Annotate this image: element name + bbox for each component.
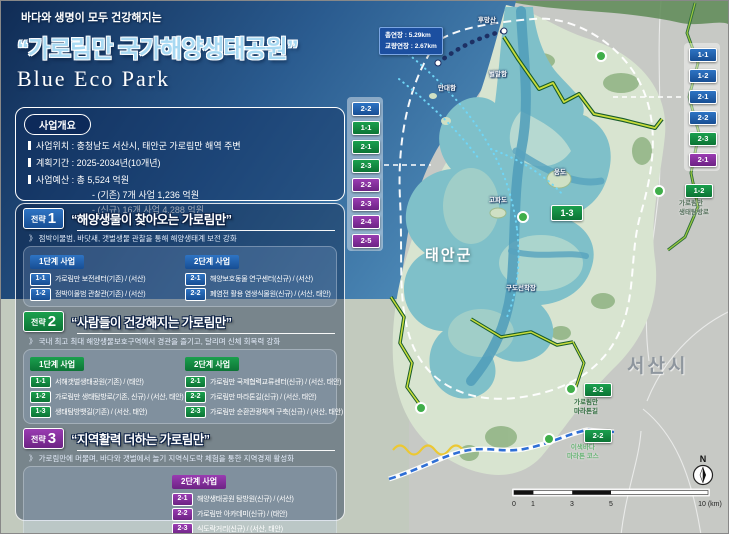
strategy-2-header: 전략 2 “사람들이 건강해지는 가로림만” bbox=[23, 311, 337, 332]
region-label-seosan: 서산시 bbox=[627, 351, 688, 378]
bullet-bar-icon bbox=[28, 141, 31, 150]
region-label-taean: 태안군 bbox=[425, 244, 472, 265]
item-text: 서해갯벌생태공원(기존) / (태안) bbox=[55, 377, 144, 387]
item-badge: 1-3 bbox=[30, 406, 51, 419]
place-label: 구도선착장 bbox=[506, 282, 536, 292]
strategy-2-title: “사람들이 건강해지는 가로림만” bbox=[71, 312, 231, 331]
item-text: 가로림만 아카데미(신규) / (태안) bbox=[197, 509, 287, 519]
strategy-3-items-box: 2단계 사업 2-1해양생태공원 탐방원(신규) / (서산) 2-2가로림만 … bbox=[23, 466, 337, 534]
map-badge: 1-1 bbox=[689, 48, 717, 62]
scale-tick-10: 10 (km) bbox=[698, 501, 722, 508]
map-badge: 2-1 bbox=[689, 153, 717, 167]
map-badge: 2-3 bbox=[689, 132, 717, 146]
item-text: 가로림만 국제협력교류센터(신규) / (서산, 태안) bbox=[210, 377, 341, 387]
item-badge: 2-3 bbox=[172, 523, 193, 534]
strategy-word: 전략 bbox=[31, 433, 46, 447]
map-badge: 2-2 bbox=[352, 102, 380, 116]
place-label: 웅도 bbox=[554, 166, 566, 176]
list-item: 2-1해양보호동물 연구센터(신규) / (서산) bbox=[185, 273, 330, 286]
item-text: 폐염전 활용 염생식물원(신규) / (서산, 태안) bbox=[210, 289, 331, 299]
phase2-header: 2단계 사업 bbox=[172, 475, 226, 489]
map-badge: 2-2 bbox=[584, 429, 612, 443]
place-label: 고파도 bbox=[489, 194, 507, 204]
item-badge: 2-1 bbox=[172, 493, 193, 506]
list-item: 2-2폐염전 활용 염생식물원(신규) / (서산, 태안) bbox=[185, 288, 330, 301]
phase2-column: 2단계 사업 2-1해양보호동물 연구센터(신규) / (서산) 2-2폐염전 … bbox=[185, 251, 330, 301]
scale-tick-5: 5 bbox=[609, 501, 613, 508]
tagline: 바다와 생명이 모두 건강해지는 bbox=[21, 9, 357, 25]
phase2-column: 2단계 사업 2-1가로림만 국제협력교류센터(신규) / (서산, 태안) 2… bbox=[185, 354, 330, 419]
list-item: 1-3생태탐방뱃길(기존) / (서산, 태안) bbox=[30, 406, 175, 419]
bridge-info-box: 총연장 : 5.29km 교량연장 : 2.67km bbox=[379, 27, 443, 55]
strategy-1-badge: 전략 1 bbox=[23, 208, 64, 229]
map-badge: 2-1 bbox=[352, 140, 380, 154]
scale-tick-1: 1 bbox=[531, 501, 535, 508]
item-text: 해양생태공원 탐방원(신규) / (서산) bbox=[197, 494, 294, 504]
overview-badge: 사업개요 bbox=[24, 114, 91, 135]
item-text: 식도락거리(신규) / (서산, 태안) bbox=[197, 524, 283, 534]
scale-tick-3: 3 bbox=[570, 501, 574, 508]
strategy-1-desc: 》 점박이물범, 바닷새, 갯벌생물 관찰을 통해 해양생태계 보전 강화 bbox=[29, 233, 337, 244]
poster: 0 1 3 5 10 (km) N 바다와 생명이 모두 건강해지는 “가로림만… bbox=[0, 0, 729, 534]
item-badge: 2-2 bbox=[172, 508, 193, 521]
list-item: 1-1가로림만 보전센터(기존) / (서산) bbox=[30, 273, 175, 286]
list-item: 2-1해양생태공원 탐방원(신규) / (서산) bbox=[172, 493, 330, 506]
map-badge: 1-1 bbox=[352, 121, 380, 135]
item-text: 가로림만 생태탐방로(기존, 신규) / (서산, 태안) bbox=[55, 392, 184, 402]
overview-period: 계획기간 : 2025-2034년(10개년) bbox=[28, 156, 344, 169]
page-title: “가로림만 국가해양생태공원” bbox=[17, 29, 357, 64]
phase2-column: 2단계 사업 2-1해양생태공원 탐방원(신규) / (서산) 2-2가로림만 … bbox=[172, 471, 330, 534]
strategy-3-title: “지역활력 더하는 가로림만” bbox=[71, 429, 209, 448]
bridge-span-length: 교량연장 : 2.67km bbox=[385, 41, 437, 52]
strategy-number: 1 bbox=[48, 211, 56, 227]
route-label-eco-trail: 가로림만 생태탐방로 bbox=[679, 200, 709, 218]
overview-period-text: 계획기간 : 2025-2034년(10개년) bbox=[36, 158, 161, 168]
item-text: 점박이물범 관찰관(기존) / (서산) bbox=[55, 289, 145, 299]
right-badge-strip bbox=[684, 43, 720, 171]
phase2-header: 2단계 사업 bbox=[185, 255, 239, 269]
place-label: 벌말항 bbox=[489, 68, 507, 78]
item-badge: 1-2 bbox=[30, 288, 51, 301]
list-item: 2-1가로림만 국제협력교류센터(신규) / (서산, 태안) bbox=[185, 376, 330, 389]
map-badge: 2-5 bbox=[352, 234, 380, 248]
map-badge: 2-2 bbox=[352, 178, 380, 192]
item-badge: 2-1 bbox=[185, 273, 206, 286]
page-subtitle: Blue Eco Park bbox=[17, 66, 357, 92]
strategy-2-badge: 전략 2 bbox=[23, 311, 64, 332]
list-item: 2-3가로림만 순환관광체계 구축(신규) / (서산, 태안) bbox=[185, 406, 330, 419]
strategy-word: 전략 bbox=[31, 213, 46, 227]
item-text: 가로림만 보전센터(기존) / (서산) bbox=[55, 274, 145, 284]
strategy-2-desc: 》 국내 최고 최대 해양생물보호구역에서 경관을 즐기고, 달리며 신체 회복… bbox=[29, 336, 337, 347]
route-label-line: 마라톤길 bbox=[574, 408, 598, 417]
strategy-3-badge: 전략 3 bbox=[23, 428, 64, 449]
strategies-panel: 전략 1 “해양생물이 찾아오는 가로림만” 》 점박이물범, 바닷새, 갯벌생… bbox=[15, 203, 345, 521]
bullet-bar-icon bbox=[28, 175, 31, 184]
scale-tick-0: 0 bbox=[512, 501, 516, 508]
strategy-2-items-box: 1단계 사업 1-1서해갯벌생태공원(기존) / (태안) 1-2가로림만 생태… bbox=[23, 349, 337, 425]
map-badge: 2-3 bbox=[352, 197, 380, 211]
map-badge: 2-2 bbox=[689, 111, 717, 125]
phase1-column: 1단계 사업 1-1가로림만 보전센터(기존) / (서산) 1-2점박이물범 … bbox=[30, 251, 175, 301]
item-text: 생태탐방뱃길(기존) / (서산, 태안) bbox=[55, 407, 147, 417]
item-badge: 1-1 bbox=[30, 376, 51, 389]
map-badge: 1-2 bbox=[689, 69, 717, 83]
strategy-1-section: 전략 1 “해양생물이 찾아오는 가로림만” 》 점박이물범, 바닷새, 갯벌생… bbox=[23, 208, 337, 307]
item-badge: 2-2 bbox=[185, 391, 206, 404]
phase1-header: 1단계 사업 bbox=[30, 357, 84, 371]
item-badge: 2-2 bbox=[185, 288, 206, 301]
route-label-line: 가로림만 bbox=[679, 200, 709, 209]
map-badge: 1-2 bbox=[685, 184, 713, 198]
route-label-line: 가로림만 bbox=[574, 399, 598, 408]
strategy-1-items-box: 1단계 사업 1-1가로림만 보전센터(기존) / (서산) 1-2점박이물범 … bbox=[23, 246, 337, 307]
route-label-line: 생태탐방로 bbox=[679, 209, 709, 218]
strategy-word: 전략 bbox=[31, 316, 46, 330]
item-badge: 1-1 bbox=[30, 273, 51, 286]
divider bbox=[77, 333, 335, 334]
phase1-column: 1단계 사업 1-1서해갯벌생태공원(기존) / (태안) 1-2가로림만 생태… bbox=[30, 354, 175, 419]
overview-location: 사업위치 : 충청남도 서산시, 태안군 가로림만 해역 주변 bbox=[28, 139, 344, 152]
route-label-marathon-road: 가로림만 마라톤길 bbox=[574, 399, 598, 417]
strategy-2-section: 전략 2 “사람들이 건강해지는 가로림만” 》 국내 최고 최대 해양생물보호… bbox=[23, 311, 337, 425]
map-badge: 2-1 bbox=[689, 90, 717, 104]
map-badge: 2-3 bbox=[352, 159, 380, 173]
overview-budget-existing: - (기존) 7개 사업 1,236 억원 bbox=[92, 188, 344, 201]
place-label: 후망산 bbox=[478, 14, 496, 24]
strategy-1-title: “해양생물이 찾아오는 가로림만” bbox=[71, 209, 231, 228]
strategy-3-section: 전략 3 “지역활력 더하는 가로림만” 》 가로림만에 머물며, 바다와 갯벌… bbox=[23, 428, 337, 534]
item-badge: 2-3 bbox=[185, 406, 206, 419]
route-label-line: 이색바다 bbox=[567, 444, 599, 453]
map-badge: 2-2 bbox=[584, 383, 612, 397]
phase2-header: 2단계 사업 bbox=[185, 357, 239, 371]
overview-location-text: 사업위치 : 충청남도 서산시, 태안군 가로림만 해역 주변 bbox=[36, 141, 241, 151]
strategy-3-desc: 》 가로림만에 머물며, 바다와 갯벌에서 놀기 지역식도락 체험을 통한 지역… bbox=[29, 453, 337, 464]
route-label-marathon-course: 이색바다 마라톤 코스 bbox=[567, 444, 599, 462]
list-item: 1-2점박이물범 관찰관(기존) / (서산) bbox=[30, 288, 175, 301]
map-badge: 2-4 bbox=[352, 215, 380, 229]
strategy-number: 2 bbox=[48, 314, 56, 330]
bridge-total-length: 총연장 : 5.29km bbox=[385, 30, 437, 41]
map-badge: 1-3 bbox=[551, 205, 583, 221]
strategy-1-header: 전략 1 “해양생물이 찾아오는 가로림만” bbox=[23, 208, 337, 229]
list-item: 2-3식도락거리(신규) / (서산, 태안) bbox=[172, 523, 330, 534]
strategy-number: 3 bbox=[48, 431, 56, 447]
item-badge: 2-1 bbox=[185, 376, 206, 389]
overview-budget: 사업예산 : 총 5,524 억원 bbox=[28, 173, 344, 186]
item-badge: 1-2 bbox=[30, 391, 51, 404]
phase1-header: 1단계 사업 bbox=[30, 255, 84, 269]
item-text: 가로림만 마라톤길(신규) / (서산, 태안) bbox=[210, 392, 316, 402]
list-item: 1-2가로림만 생태탐방로(기존, 신규) / (서산, 태안) bbox=[30, 391, 175, 404]
north-label: N bbox=[700, 454, 707, 464]
item-text: 해양보호동물 연구센터(신규) / (서산) bbox=[210, 274, 313, 284]
divider bbox=[77, 230, 335, 231]
project-overview-box: 사업개요 사업위치 : 충청남도 서산시, 태안군 가로림만 해역 주변 계획기… bbox=[15, 107, 345, 201]
bullet-bar-icon bbox=[28, 158, 31, 167]
list-item: 2-2가로림만 마라톤길(신규) / (서산, 태안) bbox=[185, 391, 330, 404]
list-item: 1-1서해갯벌생태공원(기존) / (태안) bbox=[30, 376, 175, 389]
overview-budget-text: 사업예산 : 총 5,524 억원 bbox=[36, 175, 129, 185]
strategy-3-header: 전략 3 “지역활력 더하는 가로림만” bbox=[23, 428, 337, 449]
place-label: 만대항 bbox=[438, 82, 456, 92]
route-label-line: 마라톤 코스 bbox=[567, 453, 599, 462]
title-block: 바다와 생명이 모두 건강해지는 “가로림만 국가해양생태공원” Blue Ec… bbox=[17, 9, 357, 92]
divider bbox=[77, 450, 335, 451]
item-text: 가로림만 순환관광체계 구축(신규) / (서산, 태안) bbox=[210, 407, 343, 417]
list-item: 2-2가로림만 아카데미(신규) / (태안) bbox=[172, 508, 330, 521]
